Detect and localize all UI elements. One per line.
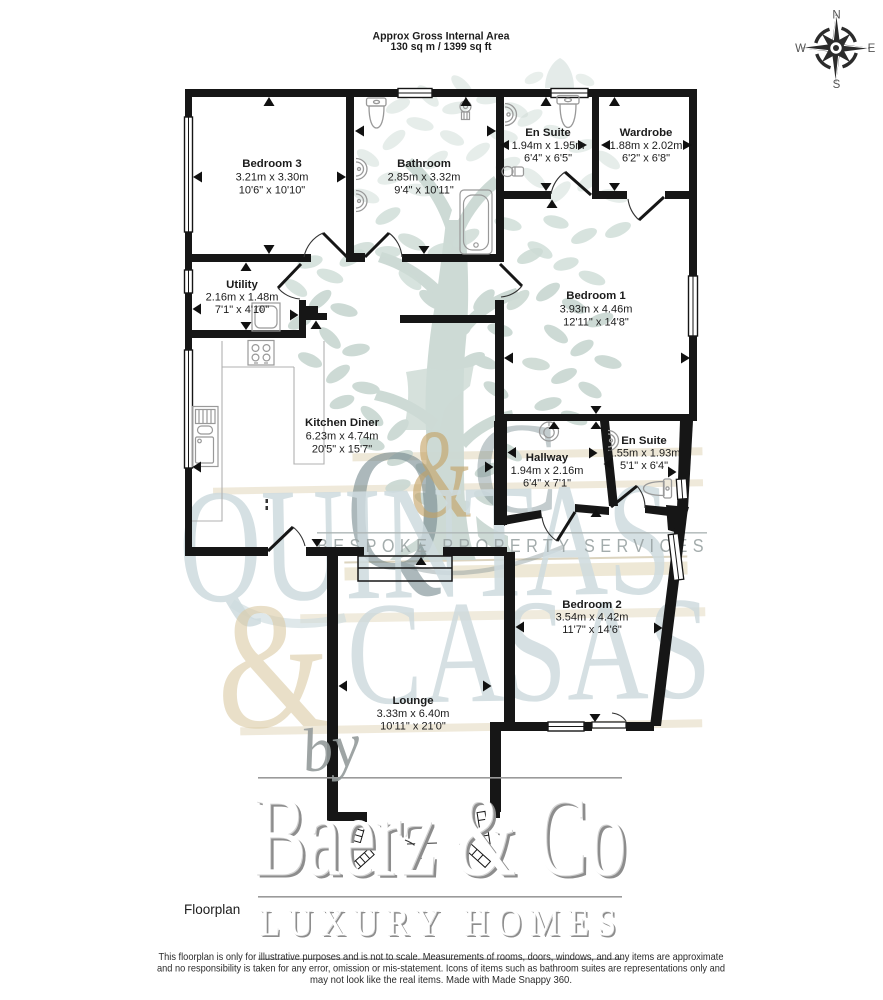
svg-text:10'11" x 21'0": 10'11" x 21'0": [380, 721, 446, 733]
svg-text:3.21m x 3.30m: 3.21m x 3.30m: [236, 172, 309, 184]
svg-text:Hallway: Hallway: [526, 452, 569, 464]
svg-text:3.54m x 4.42m: 3.54m x 4.42m: [556, 612, 629, 624]
svg-text:Bedroom 3: Bedroom 3: [242, 158, 302, 170]
svg-text:3.33m x 6.40m: 3.33m x 6.40m: [377, 708, 450, 720]
svg-text:20'5" x 15'7": 20'5" x 15'7": [312, 444, 372, 456]
svg-text:9'4" x 10'11": 9'4" x 10'11": [394, 185, 454, 197]
svg-text:En Suite: En Suite: [525, 127, 571, 139]
svg-text:LUXURY HOMES: LUXURY HOMES: [260, 902, 625, 944]
svg-text:12'11" x 14'8": 12'11" x 14'8": [563, 317, 629, 329]
svg-text:E: E: [868, 43, 876, 55]
svg-text:W: W: [795, 43, 806, 55]
svg-text:6'4" x 6'5": 6'4" x 6'5": [524, 153, 572, 165]
svg-text:This floorplan is only for ill: This floorplan is only for illustrative …: [159, 952, 724, 963]
svg-text:10'6" x 10'10": 10'6" x 10'10": [239, 185, 306, 197]
svg-text:may not look like the real ite: may not look like the real items. Made w…: [310, 975, 572, 986]
svg-text:Baerz & Co: Baerz & Co: [254, 773, 626, 901]
svg-text:1.55m x 1.93m: 1.55m x 1.93m: [608, 448, 681, 460]
svg-text:6'2" x 6'8": 6'2" x 6'8": [622, 153, 670, 165]
svg-text:N: N: [832, 10, 840, 22]
svg-text:1.94m x 2.16m: 1.94m x 2.16m: [511, 465, 584, 477]
svg-text:Bathroom: Bathroom: [397, 158, 451, 170]
svg-text:Utility: Utility: [226, 279, 258, 291]
svg-text:1.88m x 2.02m: 1.88m x 2.02m: [610, 140, 683, 152]
svg-text:and no responsibility is taken: and no responsibility is taken for any e…: [157, 964, 725, 975]
svg-text:Floorplan: Floorplan: [184, 902, 240, 917]
svg-text:Kitchen Diner: Kitchen Diner: [305, 417, 380, 429]
svg-text:3.93m x 4.46m: 3.93m x 4.46m: [560, 304, 633, 316]
svg-text:S: S: [833, 79, 841, 91]
svg-text:6.23m x 4.74m: 6.23m x 4.74m: [306, 431, 379, 443]
svg-text:1.94m x 1.95m: 1.94m x 1.95m: [512, 140, 585, 152]
svg-text:11'7" x 14'6": 11'7" x 14'6": [562, 624, 622, 636]
svg-text:Bedroom 2: Bedroom 2: [562, 599, 622, 611]
svg-text:Bedroom 1: Bedroom 1: [566, 290, 626, 302]
svg-text:2.85m x 3.32m: 2.85m x 3.32m: [388, 172, 461, 184]
svg-text:Wardrobe: Wardrobe: [620, 127, 673, 139]
svg-text:En Suite: En Suite: [621, 435, 667, 447]
svg-text:Lounge: Lounge: [392, 695, 433, 707]
svg-text:6'4" x 7'1": 6'4" x 7'1": [523, 478, 571, 490]
svg-text:5'1" x 6'4": 5'1" x 6'4": [620, 460, 668, 472]
svg-text:130 sq m / 1399 sq ft: 130 sq m / 1399 sq ft: [391, 41, 492, 53]
svg-text:2.16m x 1.48m: 2.16m x 1.48m: [206, 292, 279, 304]
svg-text:7'1" x 4'10": 7'1" x 4'10": [215, 304, 269, 316]
